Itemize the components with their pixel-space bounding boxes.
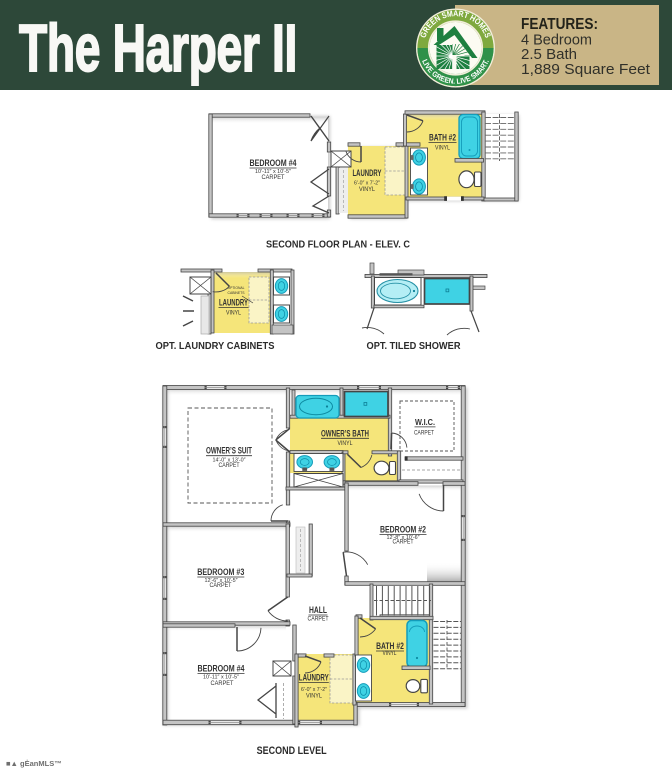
svg-text:CARPET: CARPET: [219, 463, 240, 469]
svg-text:CABINETS: CABINETS: [228, 290, 245, 295]
svg-text:BATH #2: BATH #2: [376, 641, 404, 651]
svg-text:CARPET: CARPET: [308, 616, 329, 622]
svg-text:VINYL: VINYL: [383, 651, 398, 657]
svg-text:CARPET: CARPET: [262, 174, 285, 181]
svg-text:CARPET: CARPET: [210, 583, 232, 589]
svg-text:OPT. LAUNDRY CABINETS: OPT. LAUNDRY CABINETS: [156, 340, 275, 352]
svg-text:OPT. TILED SHOWER: OPT. TILED SHOWER: [367, 340, 461, 352]
svg-text:■▲ gĖanMLS™: ■▲ gĖanMLS™: [6, 759, 62, 768]
svg-text:VINYL: VINYL: [306, 694, 323, 700]
svg-text:OWNER’S SUIT: OWNER’S SUIT: [206, 446, 252, 456]
svg-text:OWNER’S BATH: OWNER’S BATH: [321, 428, 369, 438]
svg-text:VINYL: VINYL: [435, 146, 451, 152]
svg-text:W.I.C.: W.I.C.: [415, 417, 435, 427]
svg-text:BEDROOM #4: BEDROOM #4: [198, 663, 246, 674]
svg-text:LAUNDRY: LAUNDRY: [353, 168, 382, 178]
svg-text:CARPET: CARPET: [211, 681, 234, 687]
svg-text:6′-0″ x 7′-2″: 6′-0″ x 7′-2″: [301, 687, 327, 693]
svg-text:BATH #2: BATH #2: [429, 133, 456, 143]
svg-text:LAUNDRY: LAUNDRY: [219, 298, 248, 308]
svg-text:SECOND LEVEL: SECOND LEVEL: [257, 745, 327, 757]
svg-text:1,889 Square Feet: 1,889 Square Feet: [521, 62, 650, 78]
svg-text:10′-11″ x 10′-5″: 10′-11″ x 10′-5″: [203, 675, 239, 681]
svg-text:BEDROOM #3: BEDROOM #3: [197, 566, 244, 577]
svg-text:VINYL: VINYL: [359, 187, 376, 193]
svg-text:LAUNDRY: LAUNDRY: [299, 673, 329, 683]
svg-text:VINYL: VINYL: [338, 441, 354, 447]
svg-text:VINYL: VINYL: [226, 311, 242, 317]
svg-text:FEATURES:: FEATURES:: [521, 16, 598, 33]
svg-text:BEDROOM #2: BEDROOM #2: [380, 523, 426, 534]
svg-text:BEDROOM #4: BEDROOM #4: [250, 157, 298, 168]
svg-text:HALL: HALL: [309, 605, 327, 615]
svg-text:2.5 Bath: 2.5 Bath: [521, 47, 577, 63]
svg-text:SECOND FLOOR PLAN - ELEV. C: SECOND FLOOR PLAN - ELEV. C: [266, 239, 410, 251]
svg-text:CARPET: CARPET: [393, 540, 414, 546]
svg-text:The Harper II: The Harper II: [19, 12, 297, 86]
svg-text:CARPET: CARPET: [414, 431, 434, 437]
svg-text:6′-0″ x 7′-2″: 6′-0″ x 7′-2″: [354, 180, 380, 186]
